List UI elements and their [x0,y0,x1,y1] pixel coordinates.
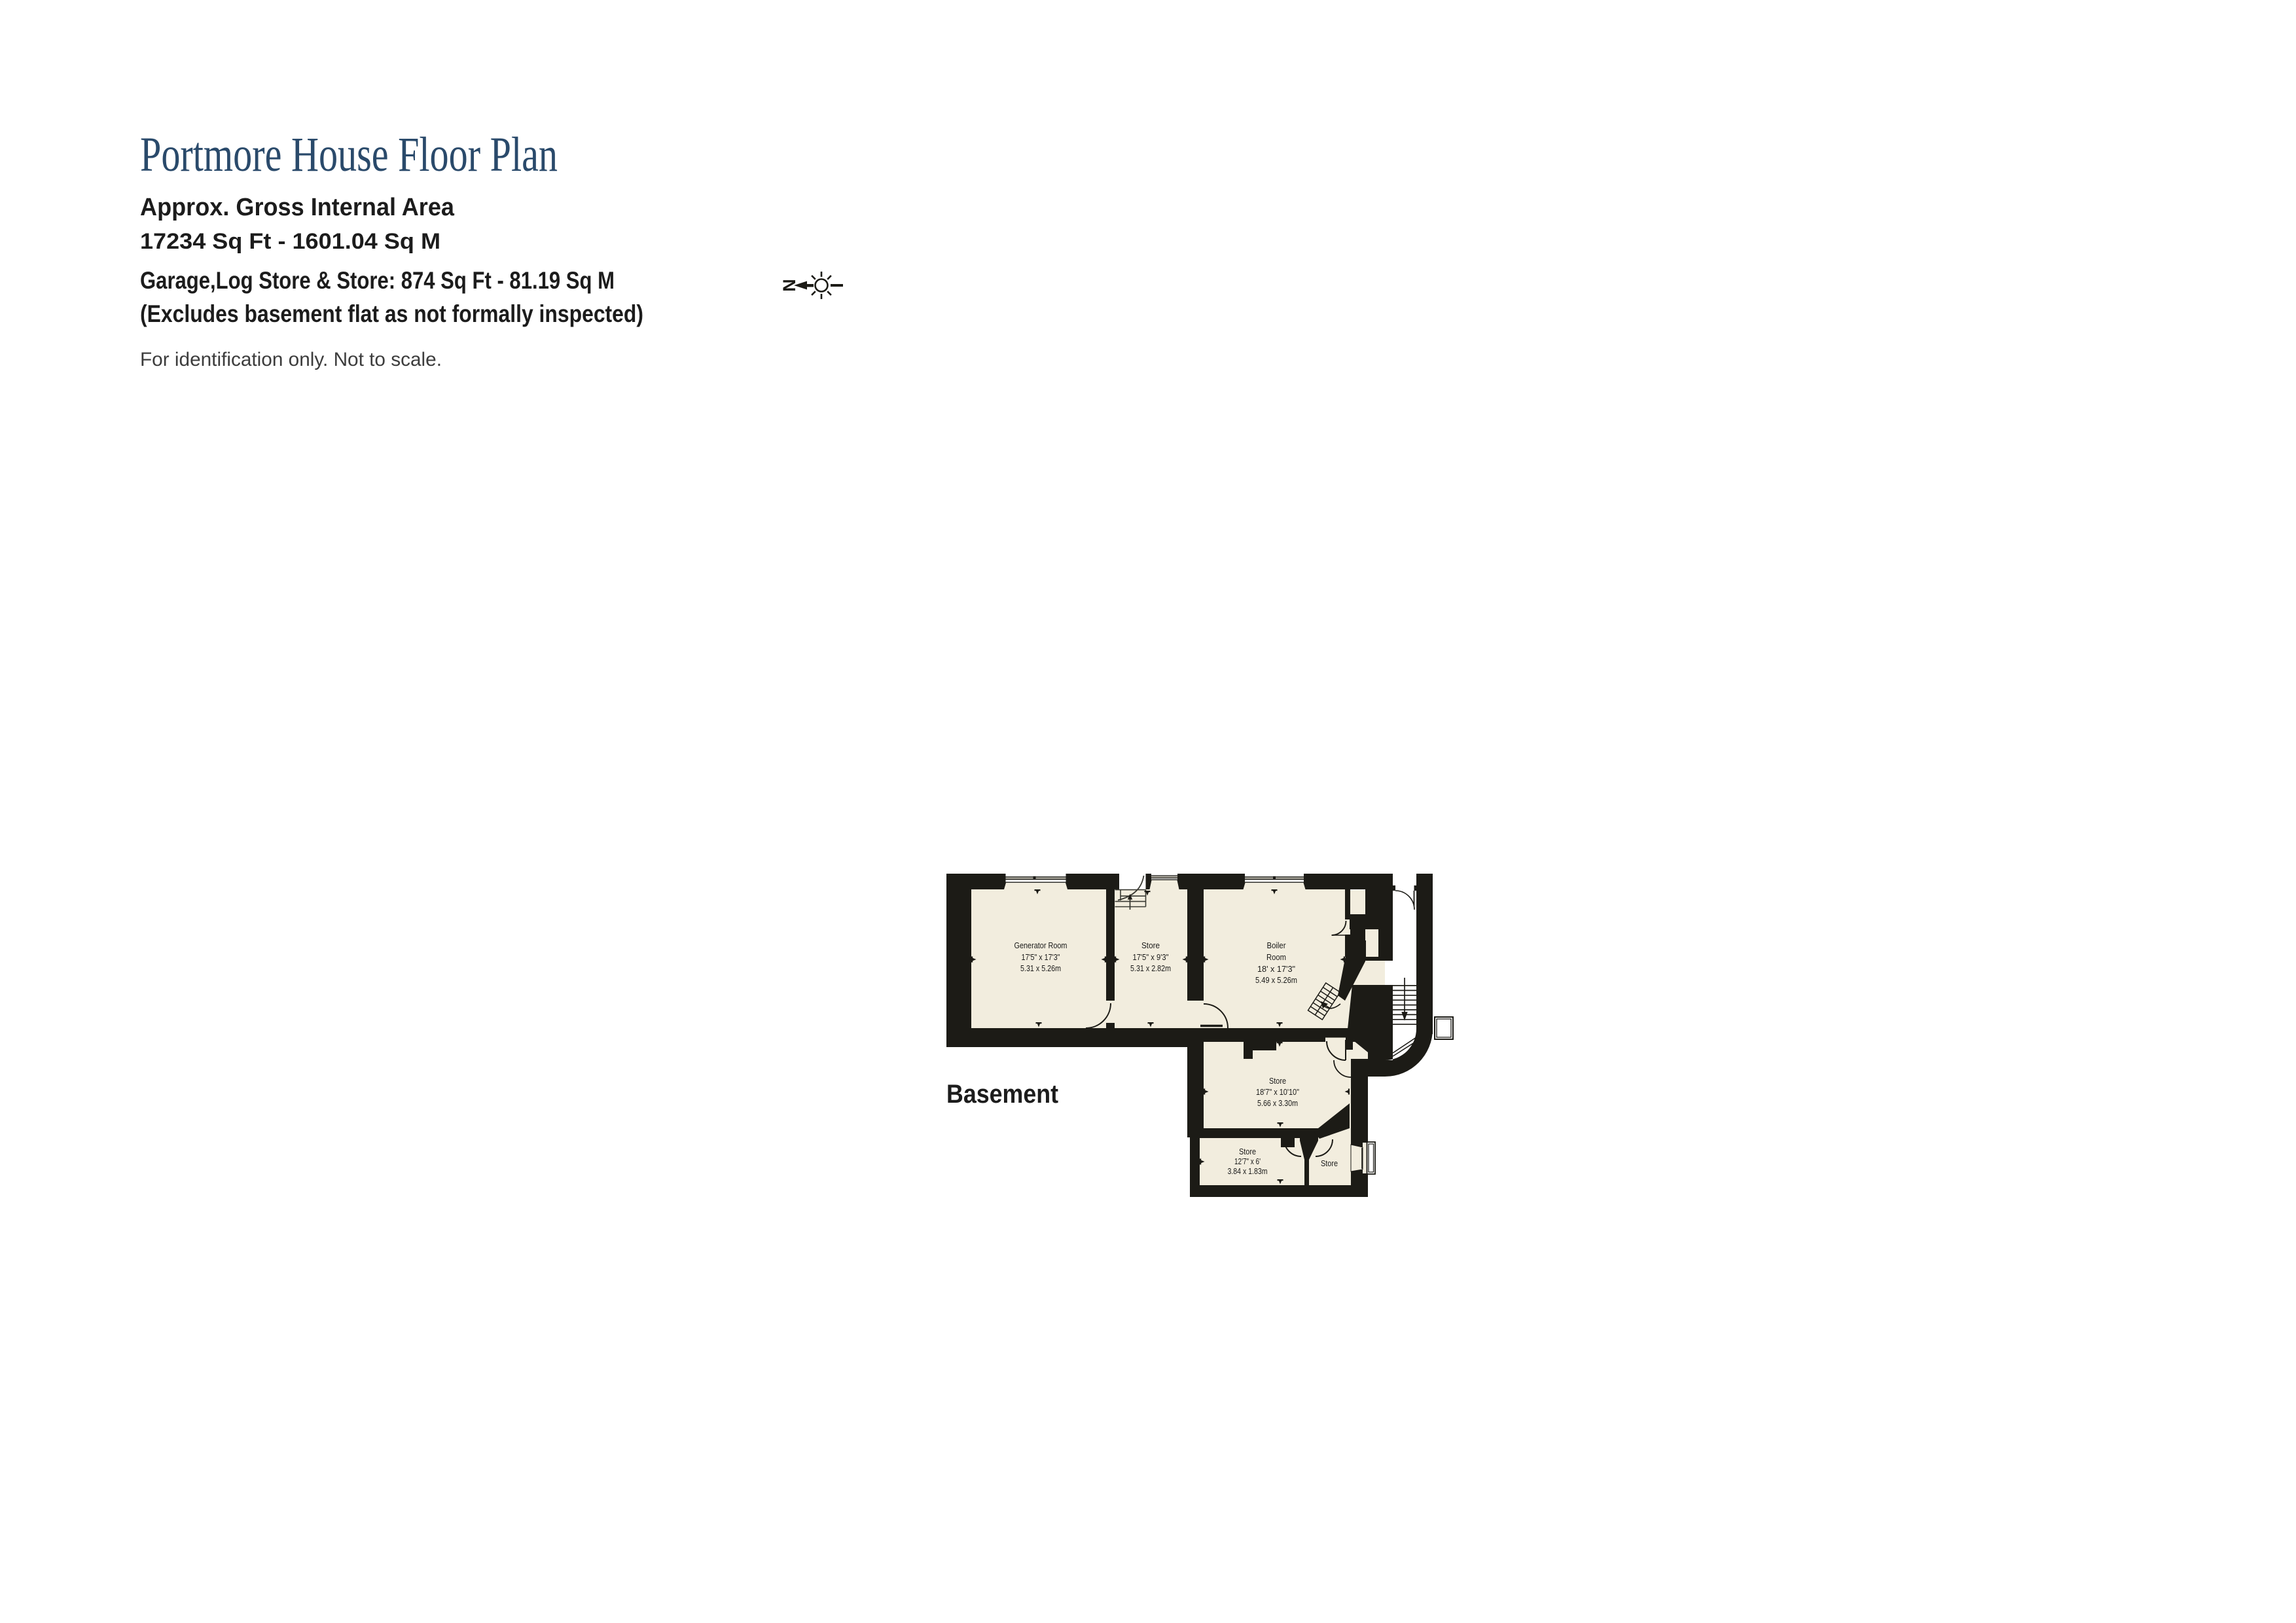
svg-text:Garage,Log Store & Store: 874: Garage,Log Store & Store: 874 Sq Ft - 81… [140,267,615,294]
svg-text:Store: Store [1239,1147,1256,1156]
svg-text:Approx. Gross Internal Area: Approx. Gross Internal Area [140,194,455,221]
svg-text:Basement: Basement [946,1080,1058,1109]
svg-text:5.31 x 2.82m: 5.31 x 2.82m [1130,963,1171,973]
svg-text:Boiler: Boiler [1267,940,1287,950]
svg-text:17'5" x 17'3": 17'5" x 17'3" [1022,952,1060,962]
svg-text:17'5" x 9'3": 17'5" x 9'3" [1133,952,1169,962]
svg-text:17234 Sq Ft - 1601.04 Sq M: 17234 Sq Ft - 1601.04 Sq M [140,229,440,254]
svg-text:5.66 x 3.30m: 5.66 x 3.30m [1257,1098,1298,1108]
svg-text:Portmore House Floor Plan: Portmore House Floor Plan [140,128,558,182]
svg-text:Store: Store [1269,1076,1286,1086]
svg-text:5.31 x 5.26m: 5.31 x 5.26m [1020,963,1061,973]
svg-text:(Excludes basement flat as not: (Excludes basement flat as not formally … [140,300,643,327]
svg-text:Generator Room: Generator Room [1014,940,1067,950]
svg-text:18'7" x 10'10": 18'7" x 10'10" [1256,1087,1299,1097]
svg-text:12'7" x 6': 12'7" x 6' [1234,1156,1261,1166]
svg-text:5.49 x 5.26m: 5.49 x 5.26m [1255,975,1297,985]
svg-text:18' x 17'3": 18' x 17'3" [1257,964,1295,974]
svg-text:3.84 x 1.83m: 3.84 x 1.83m [1228,1166,1268,1176]
svg-text:For identification only. Not t: For identification only. Not to scale. [140,349,442,370]
svg-text:Store: Store [1321,1158,1338,1168]
svg-text:Room: Room [1266,952,1286,962]
svg-text:Store: Store [1141,940,1160,950]
